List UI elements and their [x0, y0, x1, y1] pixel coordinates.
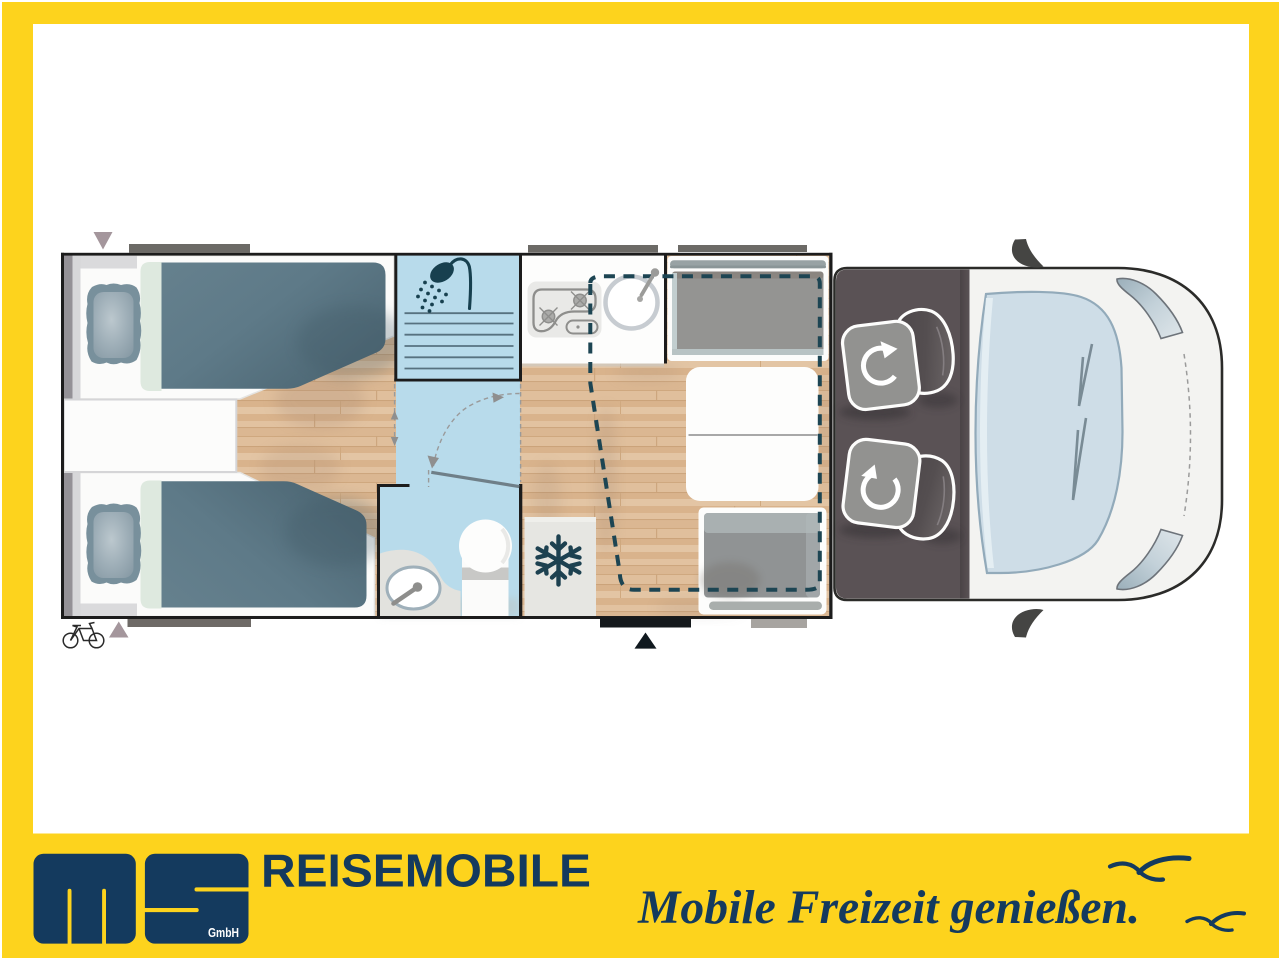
svg-text:Mobile Freizeit genießen.: Mobile Freizeit genießen.	[637, 881, 1140, 934]
svg-text:GmbH: GmbH	[208, 925, 239, 940]
svg-text:REISEMOBILE: REISEMOBILE	[261, 844, 591, 896]
